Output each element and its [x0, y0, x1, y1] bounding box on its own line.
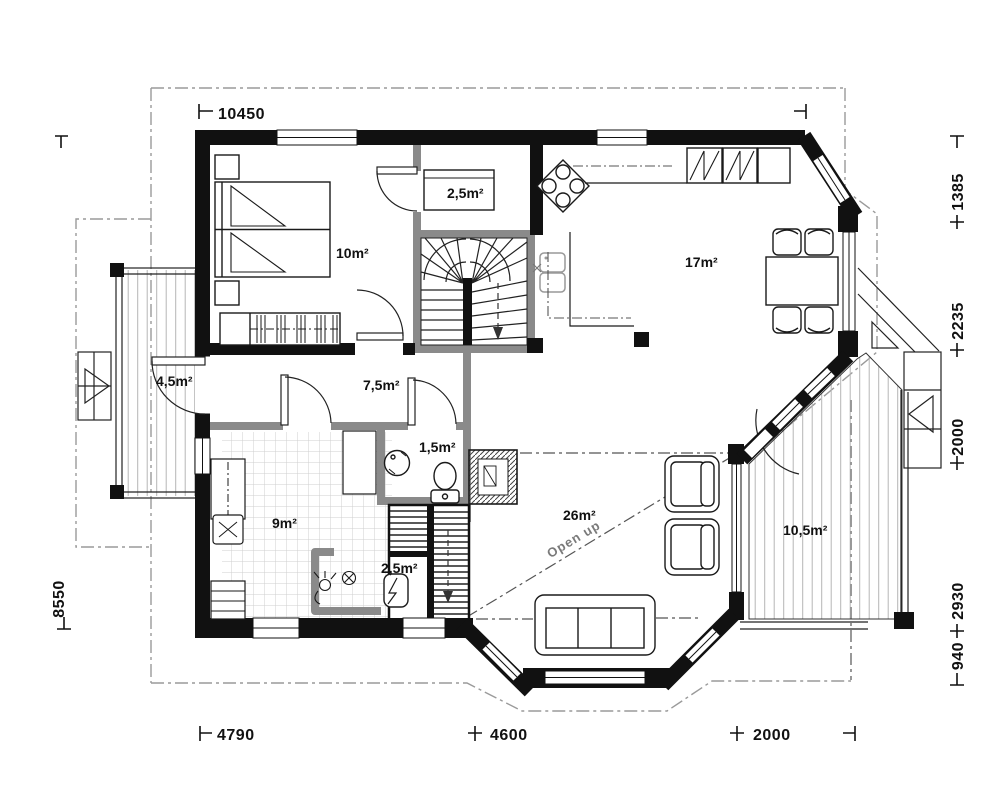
- fireplace: [469, 450, 517, 504]
- washbasin-icon: [385, 451, 410, 476]
- room-label-porch: 4,5m²: [156, 373, 193, 389]
- kitchen-counter-edge: [570, 183, 687, 326]
- dim-left: 8550: [51, 580, 68, 618]
- slope-arrow-icon: [872, 322, 898, 348]
- freezer-icon: [723, 148, 757, 183]
- dim-right-3: 2000: [950, 418, 967, 456]
- floor-plan-page: 10m² 2,5m² 17m² 4,5m² 7,5m² 1,5m² 9m² 2,…: [0, 0, 1000, 800]
- stove-icon: [537, 160, 589, 212]
- deck-planks: [749, 353, 902, 619]
- nightstand: [215, 155, 239, 179]
- water-heater-icon: [384, 574, 408, 607]
- window: [253, 618, 299, 638]
- entry-arrow-icon: [909, 396, 933, 432]
- deck-corner-post: [894, 612, 914, 629]
- nightstand: [215, 281, 239, 305]
- window: [545, 671, 645, 684]
- closet-door: [377, 167, 421, 212]
- room-label-deck: 10,5m²: [783, 522, 828, 538]
- dim-right-5: 940: [950, 642, 967, 670]
- room-label-hall: 7,5m²: [363, 377, 400, 393]
- room-label-closet: 2,5m²: [447, 185, 484, 201]
- window-diagonal: [818, 158, 845, 200]
- dim-right-2: 2235: [950, 302, 967, 340]
- deck-steps: [904, 352, 941, 468]
- cabinet: [758, 148, 790, 183]
- dim-bottom-2: 4600: [490, 727, 528, 744]
- utility-counter: [211, 459, 245, 619]
- utility-door: [281, 375, 331, 430]
- room-label-kitchen: 17m²: [685, 254, 718, 270]
- fridge-icon: [687, 148, 722, 183]
- sofa: [535, 595, 655, 655]
- kitchen-sink-icon: [533, 253, 565, 292]
- room-label-utility: 9m²: [272, 515, 297, 531]
- toilet-icon: [431, 463, 459, 504]
- dim-bottom-3: 2000: [753, 727, 791, 744]
- window: [195, 438, 210, 474]
- wc-door: [408, 378, 456, 430]
- cabinet: [343, 431, 376, 494]
- stairs-main: [421, 238, 527, 345]
- wardrobe: [220, 313, 340, 345]
- armchair: [665, 519, 719, 575]
- dim-top: 10450: [218, 106, 265, 123]
- room-label-wc: 1,5m²: [419, 439, 456, 455]
- dining-table: [766, 257, 838, 305]
- floor-plan-drawing: 10m² 2,5m² 17m² 4,5m² 7,5m² 1,5m² 9m² 2,…: [0, 0, 1000, 800]
- dim-right-4: 2930: [950, 582, 967, 620]
- window: [277, 130, 357, 145]
- room-label-shower: 2,5m²: [381, 560, 418, 576]
- bed: [215, 182, 330, 277]
- window: [732, 464, 741, 592]
- window: [843, 232, 855, 331]
- bedroom-door: [355, 290, 403, 355]
- armchair: [665, 456, 719, 512]
- window: [597, 130, 647, 145]
- window: [403, 618, 445, 638]
- roof-eave-lines: [858, 268, 939, 352]
- dim-right-1: 1385: [950, 173, 967, 211]
- room-label-bedroom: 10m²: [336, 245, 369, 261]
- dim-bottom-1: 4790: [217, 727, 255, 744]
